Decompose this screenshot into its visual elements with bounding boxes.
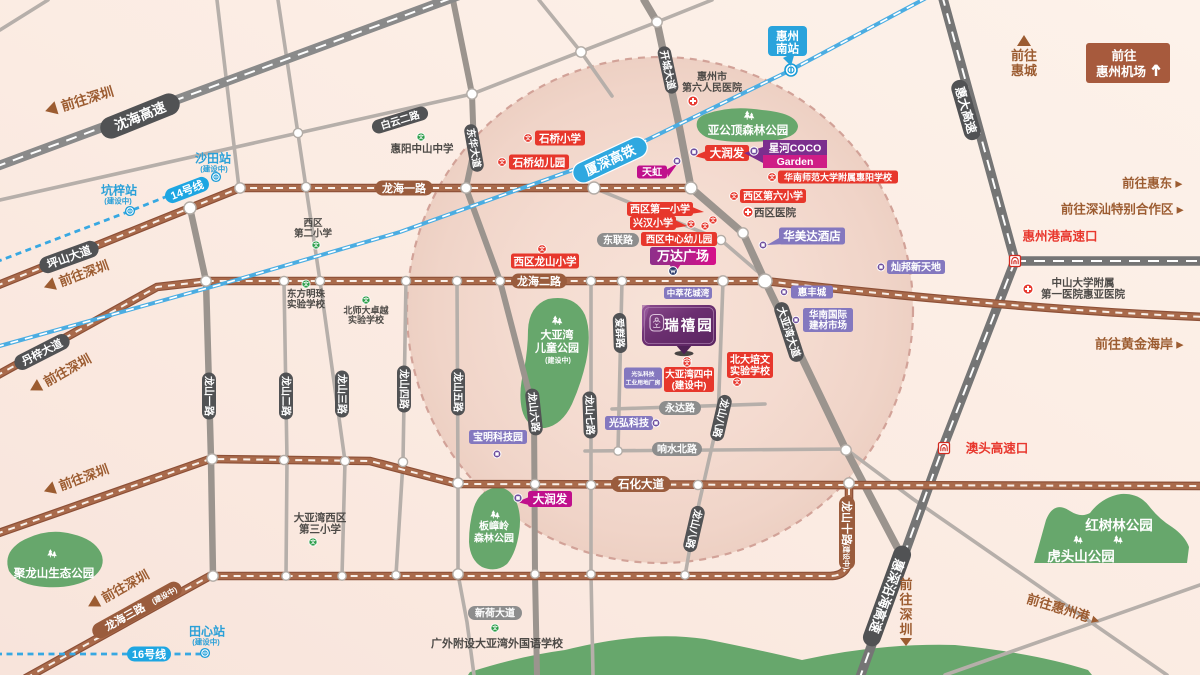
svg-text:大亚湾: 大亚湾	[541, 327, 574, 341]
svg-text:龙山五路: 龙山五路	[451, 371, 464, 413]
svg-text:永达路: 永达路	[664, 402, 696, 415]
svg-text:西区: 西区	[303, 218, 323, 229]
svg-text:Garden: Garden	[777, 156, 814, 168]
svg-text:惠州: 惠州	[776, 29, 799, 43]
svg-text:华南国际: 华南国际	[809, 309, 848, 321]
svg-text:前往惠东 ▸: 前往惠东 ▸	[1122, 176, 1183, 191]
svg-text:16号线: 16号线	[132, 647, 166, 661]
svg-text:中萃花城湾: 中萃花城湾	[667, 288, 710, 298]
svg-text:实验学校: 实验学校	[348, 314, 385, 325]
svg-text:南站: 南站	[776, 42, 799, 56]
svg-text:石桥小学: 石桥小学	[538, 132, 581, 145]
svg-text:石化大道: 石化大道	[617, 477, 664, 491]
svg-text:聚龙山生态公园: 聚龙山生态公园	[13, 566, 95, 580]
svg-text:北大培文: 北大培文	[730, 353, 771, 366]
svg-text:东方明珠: 东方明珠	[287, 288, 326, 300]
svg-text:西区中心幼儿园: 西区中心幼儿园	[646, 233, 713, 245]
svg-text:森林公园: 森林公园	[473, 532, 514, 545]
svg-text:第一医院惠亚医院: 第一医院惠亚医院	[1041, 288, 1125, 301]
svg-text:华南师范大学附属惠阳学校: 华南师范大学附属惠阳学校	[784, 171, 893, 182]
svg-text:实验学校: 实验学校	[287, 299, 326, 311]
svg-text:东联路: 东联路	[603, 234, 634, 247]
svg-text:西区龙山小学: 西区龙山小学	[514, 255, 577, 268]
svg-text:深: 深	[899, 607, 912, 622]
svg-text:大润发: 大润发	[533, 492, 568, 506]
svg-text:光弘科技: 光弘科技	[630, 370, 654, 378]
svg-text:北师大卓越: 北师大卓越	[343, 304, 389, 315]
svg-text:红树林公园: 红树林公园	[1085, 517, 1153, 533]
svg-text:大亚湾四中: 大亚湾四中	[665, 368, 713, 380]
svg-text:大亚湾西区: 大亚湾西区	[294, 511, 347, 524]
svg-text:惠城: 惠城	[1011, 63, 1037, 78]
svg-text:第三小学: 第三小学	[299, 523, 341, 536]
svg-text:龙山四路: 龙山四路	[397, 368, 410, 410]
svg-text:万达广场: 万达广场	[656, 249, 709, 264]
svg-text:儿童公园: 儿童公园	[534, 340, 579, 354]
svg-text:龙山一路: 龙山一路	[202, 375, 215, 417]
svg-text:惠丰城: 惠丰城	[798, 286, 827, 298]
svg-text:前: 前	[899, 577, 912, 592]
svg-text:爱群路: 爱群路	[613, 318, 627, 349]
svg-text:惠阳中山中学: 惠阳中山中学	[391, 142, 454, 155]
svg-text:星河COCO: 星河COCO	[769, 143, 822, 155]
svg-text:宝明科技园: 宝明科技园	[473, 431, 523, 444]
svg-text:前往: 前往	[1011, 48, 1037, 63]
svg-text:龙海一路: 龙海一路	[381, 181, 427, 195]
svg-text:龙山二路: 龙山二路	[279, 375, 292, 417]
svg-text:前往黄金海岸 ▸: 前往黄金海岸 ▸	[1095, 337, 1185, 352]
svg-text:大润发: 大润发	[710, 146, 745, 160]
svg-text:坑梓站: 坑梓站	[101, 182, 137, 197]
svg-text:(建设中): (建设中)	[672, 379, 707, 391]
svg-text:(建设中): (建设中)	[545, 356, 571, 365]
svg-text:新荷大道: 新荷大道	[475, 607, 515, 620]
svg-text:(建设中): (建设中)	[842, 544, 851, 570]
svg-text:天虹: 天虹	[642, 166, 662, 179]
svg-text:灿邦新天地: 灿邦新天地	[891, 261, 941, 274]
svg-text:(建设中): (建设中)	[200, 164, 228, 174]
svg-text:惠州市: 惠州市	[697, 70, 727, 83]
svg-text:龙山十路: 龙山十路	[840, 500, 854, 546]
svg-text:响水北路: 响水北路	[657, 443, 698, 456]
svg-text:虎头山公园: 虎头山公园	[1047, 548, 1115, 564]
svg-text:(建设中): (建设中)	[192, 637, 220, 647]
svg-text:往: 往	[899, 592, 912, 607]
svg-text:建材市场: 建材市场	[808, 320, 848, 332]
svg-text:兴汉小学: 兴汉小学	[633, 217, 673, 230]
svg-text:圳: 圳	[899, 622, 912, 637]
svg-text:前往: 前往	[1111, 48, 1137, 63]
svg-text:石桥幼儿园: 石桥幼儿园	[512, 156, 566, 169]
svg-text:华美达酒店: 华美达酒店	[783, 229, 841, 243]
svg-text:工业用地厂房: 工业用地厂房	[626, 378, 661, 386]
svg-text:板嶂岭: 板嶂岭	[479, 520, 509, 533]
svg-text:惠州港高速口: 惠州港高速口	[1022, 229, 1097, 244]
svg-text:澳头高速口: 澳头高速口	[966, 441, 1029, 456]
svg-text:中山大学附属: 中山大学附属	[1052, 276, 1115, 289]
svg-text:瑞禧园: 瑞禧园	[664, 317, 714, 335]
svg-text:惠州机场: 惠州机场	[1096, 64, 1146, 79]
svg-text:田心站: 田心站	[189, 623, 225, 638]
svg-text:第二小学: 第二小学	[294, 228, 333, 240]
svg-text:西区医院: 西区医院	[754, 206, 796, 219]
svg-text:实验学校: 实验学校	[730, 364, 771, 377]
svg-text:西区第一小学: 西区第一小学	[630, 203, 690, 216]
svg-text:(建设中): (建设中)	[104, 196, 132, 206]
svg-text:光弘科技: 光弘科技	[608, 417, 650, 430]
svg-text:第六人民医院: 第六人民医院	[682, 81, 742, 94]
svg-text:龙海二路: 龙海二路	[516, 274, 562, 288]
svg-text:龙山三路: 龙山三路	[335, 373, 348, 415]
svg-text:西区第六小学: 西区第六小学	[743, 190, 803, 203]
svg-text:沙田站: 沙田站	[195, 150, 231, 165]
svg-text:前往深汕特别合作区 ▸: 前往深汕特别合作区 ▸	[1061, 202, 1185, 217]
svg-text:亚公顶森林公园: 亚公顶森林公园	[708, 123, 789, 137]
svg-text:广外附设大亚湾外国语学校: 广外附设大亚湾外国语学校	[431, 636, 564, 650]
